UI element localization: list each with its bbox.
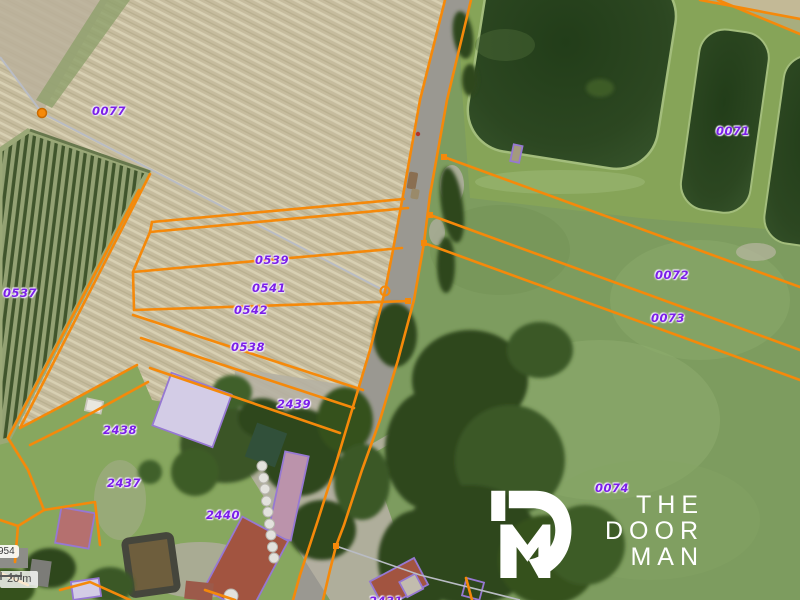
aerial-map-viewport[interactable]: 0077053705390541054205382439243824372440…	[0, 0, 800, 600]
pond-large	[462, 0, 682, 175]
road-object	[416, 132, 420, 136]
vertex-marker	[405, 298, 411, 304]
building-farmhouse	[55, 507, 95, 548]
vertex-marker	[441, 154, 447, 160]
vertex-marker	[427, 212, 433, 218]
reference-label: 954	[0, 545, 19, 558]
building-lilac-small	[71, 578, 101, 600]
scale-bar: 20 m	[0, 571, 38, 588]
survey-point-marker	[38, 109, 47, 118]
satellite-map-canvas	[0, 0, 800, 600]
scale-ruler-icon	[0, 571, 22, 581]
vertex-marker	[333, 543, 339, 549]
vertex-marker	[421, 240, 427, 246]
